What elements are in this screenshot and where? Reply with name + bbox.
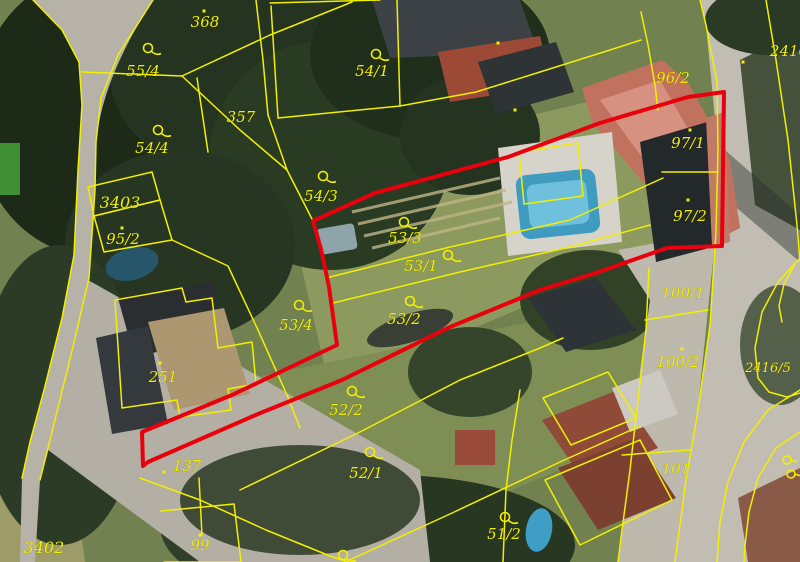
parcel-label-2416: 2416 <box>769 42 800 60</box>
parcel-label-357: 357 <box>227 108 256 126</box>
parcel-label-95-2: 95/2 <box>106 230 140 248</box>
parcel-label-101: 101 <box>662 460 691 478</box>
boundary-point-dot <box>159 362 162 365</box>
parcel-label-54-3: 54/3 <box>304 187 338 205</box>
parcel-label-368: 368 <box>191 13 220 31</box>
parcel-label-100-1: 100/1 <box>661 284 704 302</box>
parcel-label-97-2: 97/2 <box>673 207 707 225</box>
orthophoto-cadastral-map[interactable]: 36855/454/435754/1340395/254/396/2241697… <box>0 0 800 562</box>
boundary-point-dot <box>687 199 690 202</box>
boundary-point-dot <box>689 129 692 132</box>
boundary-point-dot <box>163 471 166 474</box>
boundary-point-dot <box>681 348 684 351</box>
parcel-label-99: 99 <box>190 536 210 554</box>
swimming-pool-water <box>526 179 590 229</box>
parcel-label-55-4: 55/4 <box>126 62 160 80</box>
parcel-label-3402: 3402 <box>24 538 65 557</box>
parcel-label-53-3: 53/3 <box>388 229 422 247</box>
boundary-point-dot <box>742 61 745 64</box>
parcel-label-54-1: 54/1 <box>355 62 389 80</box>
parcel-label-53-4: 53/4 <box>279 316 313 334</box>
parcel-label-100-2: 100/2 <box>656 353 699 371</box>
parcel-label-54-4: 54/4 <box>135 139 169 157</box>
parcel-label-251: 251 <box>148 368 178 386</box>
parcel-label-2416-5: 2416/5 <box>744 361 791 376</box>
parcel-label-52-2: 52/2 <box>329 401 363 419</box>
green-truck <box>0 143 20 195</box>
parcel-label-53-1: 53/1 <box>404 257 438 275</box>
cadastral-map-viewport: 36855/454/435754/1340395/254/396/2241697… <box>0 0 800 562</box>
small-building <box>455 430 495 465</box>
parcel-label-52-1: 52/1 <box>349 464 383 482</box>
parcel-label-137: 137 <box>173 457 202 475</box>
boundary-point-dot <box>497 42 500 45</box>
boundary-point-dot <box>514 109 517 112</box>
parcel-label-96-2: 96/2 <box>656 69 690 87</box>
parcel-label-53-2: 53/2 <box>387 310 421 328</box>
parcel-label-97-1: 97/1 <box>671 134 705 152</box>
parcel-label-3403: 3403 <box>100 193 141 212</box>
parcel-label-51-2: 51/2 <box>487 525 521 543</box>
